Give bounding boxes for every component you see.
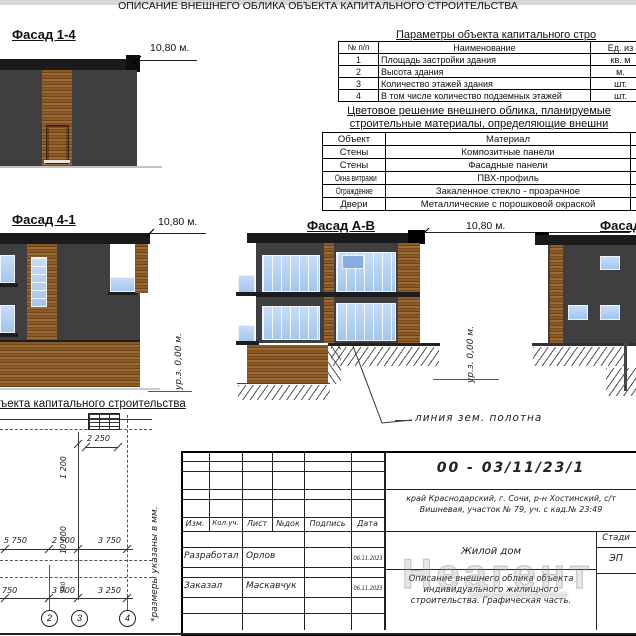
tb-grid-line (181, 597, 384, 598)
facade-ab-roof (247, 233, 425, 243)
materials-cell-material: Металлические с порошковой окраской (386, 198, 631, 211)
plan-dim-bottom-1: 750 (2, 586, 17, 595)
facade-14-dim-line (137, 60, 197, 61)
facade-41-label: Фасад 4-1 (12, 212, 76, 227)
materials-cell-object: Окна витражи (335, 173, 377, 184)
params-cell-num: 4 (339, 90, 379, 102)
tb-developer-name: Орлов (246, 551, 275, 561)
facade-41-dim-label: 10,80 м. (158, 216, 197, 228)
tb-grid-line (304, 452, 305, 630)
ground-line-label: линия зем. полотна (415, 412, 542, 424)
tb-customer-role: Заказал (184, 581, 222, 591)
materials-cell-object: Ограждение (335, 186, 372, 197)
plan-axis4-stub (127, 598, 128, 610)
plan-title-fragment: ъекта капитального строительства (0, 398, 186, 410)
tb-grid-line (181, 517, 384, 518)
facade-41-recess-slab (108, 292, 137, 295)
facade-41-left-window-upper (0, 255, 15, 283)
sheet-frame-bottom (0, 633, 636, 635)
params-col-header: Наименование (379, 42, 591, 54)
plan-wall-top (0, 419, 152, 420)
materials-cell-material: Композитные панели (386, 146, 631, 159)
params-col-header: Ед. из (591, 42, 636, 54)
params-cell-num: 1 (339, 54, 379, 66)
facade-ab-wood-base (247, 345, 328, 383)
tb-doc-code: 00 - 03/11/23/1 (386, 460, 636, 476)
materials-row: Стены Композитные панели (323, 146, 636, 159)
params-cell-name: Высота здания (379, 66, 591, 78)
tb-col-list: Лист (242, 519, 272, 528)
plan-dim-bottom-2: 3 900 (52, 586, 75, 595)
materials-cell-cut (631, 146, 636, 159)
facade-14-roof (0, 59, 130, 70)
facade-right-window-top (600, 256, 620, 270)
facade-14-door (46, 125, 69, 164)
facade-ab-ground-edge (328, 343, 440, 346)
plan-stair-block (88, 413, 120, 430)
ground-label-underline (395, 420, 412, 421)
facade-right-roof (535, 235, 636, 245)
tb-grid-line (181, 567, 384, 568)
tb-grid-line (181, 547, 384, 548)
facade-41-recess (110, 244, 135, 277)
facade-41-balcony-slab (0, 333, 18, 337)
tb-grid-line (181, 577, 384, 578)
facade-ab-level-label: ур.з. 0,00 м. (466, 326, 476, 383)
plan-axis-bubble-3: 3 (71, 610, 88, 627)
facade-41-recess-window (110, 277, 135, 292)
facade-ab-window-upper-left (262, 255, 320, 292)
tb-developer-date: 06.11.2023 (353, 555, 381, 562)
tb-col-izm: Изм. (181, 519, 209, 528)
facade-14-ground-line (0, 166, 162, 168)
facade-ab-open-sash (342, 255, 364, 269)
plan-dim-v1: 1 200 (59, 456, 68, 479)
tb-address-line1: край Краснодарский, г. Сочи, р-н Хостинс… (386, 494, 636, 503)
tb-grid-line (181, 489, 384, 490)
materials-col-header: Материал (386, 133, 631, 146)
materials-title-line1: Цветовое решение внешнего облика, планир… (322, 105, 636, 117)
title-block (181, 451, 636, 636)
plan-axis-bubble-2: 2 (41, 610, 58, 627)
materials-row: Стены Фасадные панели (323, 159, 636, 172)
facade-41-roof (0, 233, 150, 244)
materials-table: Объект Материал Стены Композитные панели… (322, 132, 636, 211)
facade-14-dim-label: 10,80 м. (150, 42, 189, 54)
materials-row: Двери Металлические с порошковой окраско… (323, 198, 636, 211)
tb-grid-line (596, 573, 636, 574)
materials-row: Окна витражи ПВХ-профиль (323, 172, 636, 185)
facade-right-window-right (600, 305, 620, 320)
facade-41-level-line (148, 391, 192, 392)
params-cell-num: 3 (339, 78, 379, 90)
tb-col-ndoc: №док (272, 519, 304, 528)
watermark: Неагент (402, 550, 594, 598)
params-row: 4 В том числе количество подземных этаже… (339, 90, 636, 102)
facade-right-slope-hatch (606, 368, 636, 396)
facade-41-tall-window (31, 257, 47, 307)
plan-axis2-stub (49, 565, 50, 610)
facade-ab-floor-slab (256, 292, 420, 297)
facade-ab-dim-label: 10,80 м. (466, 220, 505, 232)
page-title: ОПИСАНИЕ ВНЕШНЕГО ОБЛИКА ОБЪЕКТА КАПИТАЛ… (0, 0, 636, 12)
params-cell-unit: шт. (591, 90, 636, 102)
facade-right-label: Фасад (600, 218, 636, 233)
tb-col-podpis: Подпись (304, 519, 351, 528)
plan-axis4-line (127, 415, 128, 607)
params-cell-name: В том числе количество подземных этажей (379, 90, 591, 102)
facade-right-window-left (568, 305, 588, 320)
plan-dim-mid-1: 5 750 (4, 536, 27, 545)
plan-dim-bottom-line (0, 598, 133, 599)
params-cell-name: Количество этажей здания (379, 78, 591, 90)
params-cell-unit: м. (591, 66, 636, 78)
materials-row: Ограждение Закаленное стекло - прозрачно… (323, 185, 636, 198)
params-row: 2 Высота здания м. (339, 66, 636, 78)
tb-customer-name: Маскавчук (246, 581, 297, 591)
materials-cell-object: Двери (323, 198, 386, 211)
tb-grid-line (596, 531, 597, 630)
materials-cell-material: Фасадные панели (386, 159, 631, 172)
facade-41-dim-line (150, 233, 206, 234)
facade-41-wood-column (135, 244, 148, 293)
facade-right-wood-strip (550, 245, 563, 343)
params-cell-name: Площадь застройки здания (379, 54, 591, 66)
facade-ab-ground-line-left (237, 383, 330, 384)
plan-axis-bubble-4: 4 (119, 610, 136, 627)
facade-ab-step-hatch (328, 346, 341, 384)
facade-41-level-label: ур.з. 0,00 м. (174, 333, 184, 390)
materials-cell-object: Стены (323, 146, 386, 159)
materials-cell-material: ПВХ-профиль (386, 172, 631, 185)
tb-col-koluch: Кол.уч. (209, 519, 242, 527)
tb-grid-line (242, 452, 243, 630)
params-cell-unit: кв. м (591, 54, 636, 66)
tb-grid-line (181, 461, 384, 462)
facade-41-balcony-slab (0, 283, 18, 287)
materials-cell-cut (631, 159, 636, 172)
facade-ab-balcony-glass-lower (238, 325, 255, 342)
tb-developer-role: Разработал (184, 551, 239, 561)
tb-address-line2: Вишневая, участок № 79, уч. с кад.№ 23:4… (386, 505, 636, 514)
materials-col-header-cut (631, 133, 636, 146)
facade-14-door-sill (44, 160, 70, 163)
facade-ab-window-lower-right (336, 303, 396, 341)
params-row: 3 Количество этажей здания шт. (339, 78, 636, 90)
tb-grid-line (181, 613, 384, 614)
facade-ab-label: Фасад А-В (307, 218, 375, 233)
facade-ab-balcony-slab-upper (236, 292, 259, 296)
tb-stage-label: Стади (596, 533, 636, 543)
plan-dim-mid-line (0, 549, 133, 550)
materials-cell-object: Стены (323, 159, 386, 172)
facade-ab-balcony-glass-upper (238, 275, 255, 293)
tb-grid-line (181, 499, 384, 500)
drawing-sheet: ОПИСАНИЕ ВНЕШНЕГО ОБЛИКА ОБЪЕКТА КАПИТАЛ… (0, 0, 636, 636)
watermark-subline (468, 592, 568, 598)
plan-dim-mid-3: 3 750 (98, 536, 121, 545)
plan-centerline-top (0, 429, 152, 430)
tb-grid-line (596, 547, 636, 548)
tb-grid-line (181, 531, 636, 532)
plan-note-vertical: *размеры указаны в мм. (150, 506, 160, 622)
tb-customer-date: 06.11.2023 (353, 585, 381, 592)
facade-ab-window-lower-left (262, 306, 320, 340)
params-cell-num: 2 (339, 66, 379, 78)
facade-ab-ground-hatch (331, 347, 439, 366)
params-col-header: № п/п (339, 42, 379, 54)
materials-col-header: Объект (323, 133, 386, 146)
facade-14-label: Фасад 1-4 (12, 27, 76, 42)
plan-dim-top-line (86, 447, 118, 448)
facade-41-ground-line (0, 388, 160, 390)
facade-ab-roof-block (408, 230, 425, 244)
params-table-title: Параметры объекта капитального стро (396, 29, 596, 41)
facade-41-left-window-lower (0, 305, 15, 333)
params-table: № п/п Наименование Ед. из 1 Площадь заст… (338, 41, 636, 102)
facade-right-ground-edge (532, 343, 636, 346)
plan-dim-top: 2 250 (87, 434, 110, 443)
facade-41-wood-base (0, 342, 140, 387)
materials-cell-material: Закаленное стекло - прозрачное (386, 185, 631, 198)
materials-title-line2: строительные материалы, определяющие вне… (322, 118, 636, 130)
materials-cell-cut (631, 185, 636, 198)
facade-ab-ground-hatch-left (238, 385, 330, 400)
params-cell-unit: шт. (591, 78, 636, 90)
plan-wall-dash-1 (0, 560, 152, 561)
tb-grid-line (351, 452, 352, 630)
materials-cell-cut (631, 172, 636, 185)
facade-right-ground-hatch (533, 347, 625, 366)
tb-stage-value: ЭП (596, 553, 636, 564)
tb-grid-line (386, 489, 636, 490)
tb-grid-line (181, 471, 384, 472)
plan-dim-bottom-3: 3 250 (98, 586, 121, 595)
tb-col-data: Дата (351, 519, 384, 528)
plan-dim-mid-2: 2 500 (52, 536, 75, 545)
plan-dim-vertical-line (78, 432, 79, 600)
materials-cell-cut (631, 198, 636, 211)
params-row: 1 Площадь застройки здания кв. м (339, 54, 636, 66)
plan-wall-dash-2 (0, 577, 152, 578)
